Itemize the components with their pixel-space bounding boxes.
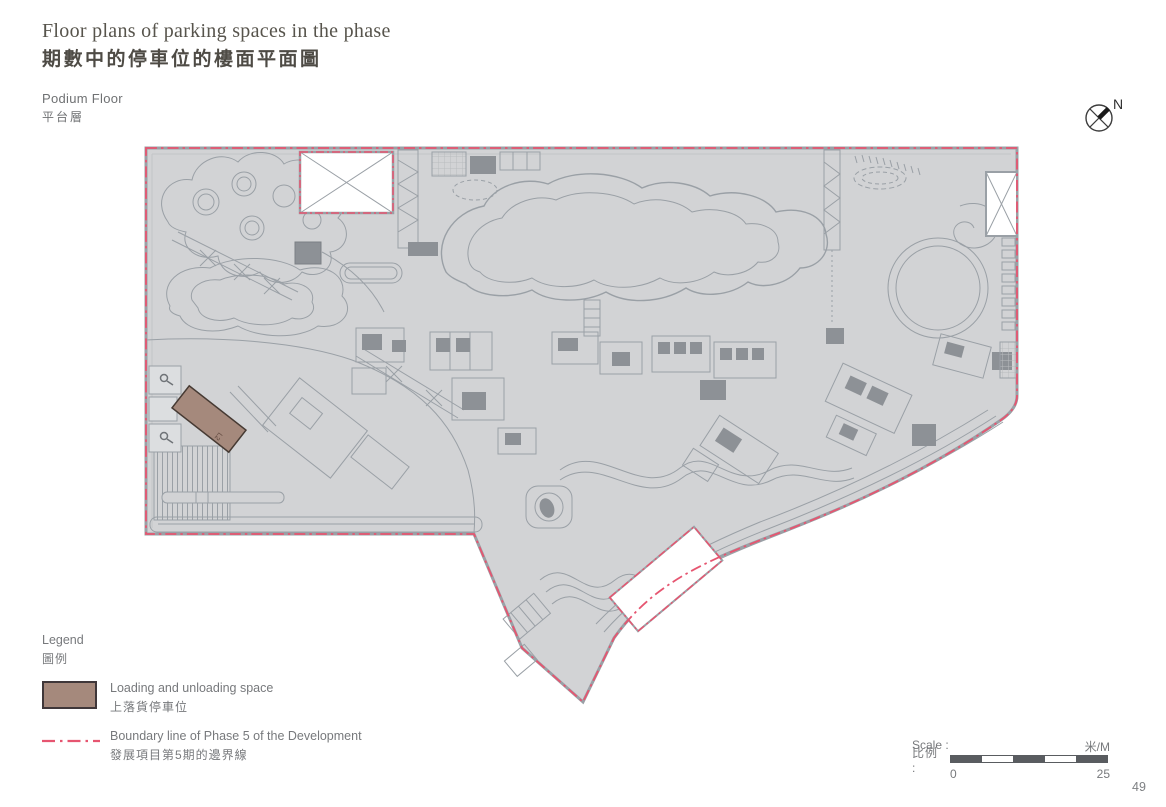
legend: Legend 圖例 Loading and unloading space 上落… (42, 633, 462, 763)
void-top-center (300, 152, 393, 213)
legend-item-boundary-line: Boundary line of Phase 5 of the Developm… (42, 729, 462, 763)
legend-label-en: Boundary line of Phase 5 of the Developm… (110, 729, 362, 743)
boundary-line-sample (42, 738, 100, 744)
legend-title-en: Legend (42, 633, 462, 647)
legend-title-zh: 圖例 (42, 650, 462, 667)
legend-item-loading-space: Loading and unloading space 上落貨停車位 (42, 681, 462, 715)
scale-bar: Scale : 米/M 比例 : 0 25 (912, 738, 1110, 781)
brochure-page: Floor plans of parking spaces in the pha… (0, 0, 1166, 807)
loading-space-swatch (42, 681, 97, 709)
scale-end: 25 (1097, 767, 1110, 781)
scale-label-zh: 比例 : (912, 744, 946, 775)
legend-label-en: Loading and unloading space (110, 681, 273, 695)
scale-unit: 米/M (1085, 738, 1110, 753)
scale-start: 0 (950, 767, 957, 781)
page-number: 49 (1132, 780, 1146, 794)
plan-base (146, 148, 1017, 702)
void-top-right (986, 172, 1017, 236)
legend-label-zh: 發展項目第5期的邊界線 (110, 746, 362, 763)
legend-label-zh: 上落貨停車位 (110, 698, 273, 715)
scale-bar-graphic (950, 755, 1108, 763)
